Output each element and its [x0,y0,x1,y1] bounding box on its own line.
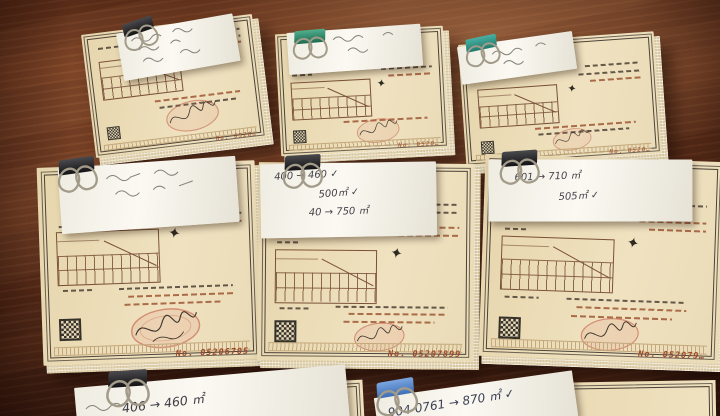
cadastral-plot-grid [56,229,160,286]
note-line: 500㎡ ✓ [318,177,437,200]
serial-number: No. 052079… [638,349,706,361]
binder-clip [104,369,154,415]
scale-text-line [279,307,309,309]
serial-number: No. 0520… [609,146,651,156]
document-stack-bottom-left: 406 → 460 ㎡ [76,372,376,416]
cadastral-plot-grid [500,235,614,293]
qr-code [106,126,120,140]
compass-icon: ✦ [376,77,387,89]
compass-icon: ✦ [566,83,577,95]
qr-code [275,320,297,342]
serial-number: No. 05206705 [176,347,250,360]
document-stack-bottom-right: 904-0761 → 870 ㎡ ✓ [376,370,720,416]
note-line: 40 → 750 ㎡ [308,199,436,218]
cadastral-plot-grid [275,249,377,303]
serial-number: No. 0520… [398,140,440,149]
qr-code [59,319,82,342]
document-stack-top-right: ✦ No. 0520… [458,31,662,166]
binder-clip [372,376,424,416]
qr-code [293,130,307,144]
header-text-line [278,241,300,243]
compass-icon: ✦ [166,225,181,242]
document-stack-middle-left: ✦ No. 05206705 [37,160,262,365]
cadastral-plot-grid [291,78,372,121]
binder-clip [291,28,332,65]
binder-clip [498,149,544,191]
document-stack-middle-center: ✦ No. 05207899 400 → 460 ✓ 500㎡ ✓ 40 → 7… [257,162,475,362]
cadastral-plot-grid [477,85,560,129]
serial-number: No. 05207899 [388,349,462,360]
photo-documents-on-table: ✦ No. 0520… [0,0,720,416]
binder-clip [54,155,103,200]
note-line: 505㎡ ✓ [558,181,692,203]
binder-clip [281,154,327,196]
document-stack-top-center: ✦ No. 0520… [275,26,449,157]
document-stack-top-left: ✦ No. 0520… [81,14,267,158]
qr-code [498,316,521,339]
document-stack-middle-right: ✦ No. 052079… 601 → 710 ㎡ 505㎡ ✓ [479,154,720,364]
